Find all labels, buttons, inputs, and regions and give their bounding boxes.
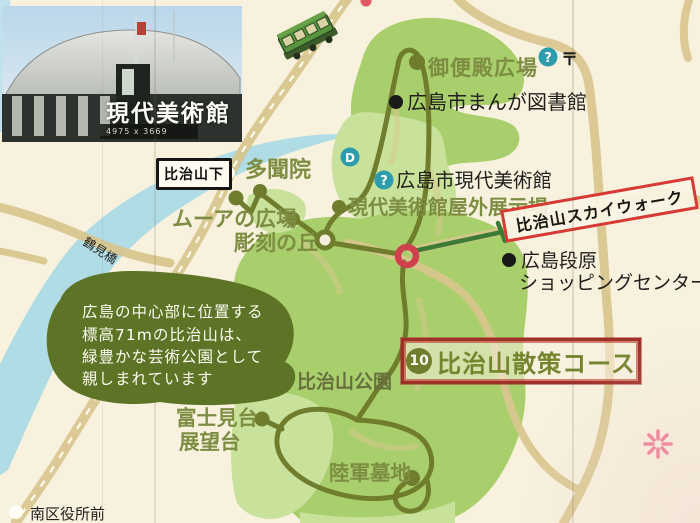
label-army-cemetery: 陸軍墓地 xyxy=(329,461,411,485)
info-blob-line1: 広島の中心部に位置する xyxy=(82,303,264,321)
question-icon-glyph: ? xyxy=(544,51,552,66)
info-blob-line2: 標高71mの比治山は、 xyxy=(82,326,252,344)
museum-photo: 現代美術館 4975 x 3669 xyxy=(2,6,242,142)
label-danbara-line1: 広島段原 xyxy=(521,250,597,272)
flower-mark xyxy=(645,431,671,457)
label-minamikuyakushomae: 南区役所前 xyxy=(30,505,105,523)
danbara-dot xyxy=(502,253,516,267)
course-number-badge: 10 xyxy=(406,348,432,374)
label-fujimidai-line2: 展望台 xyxy=(179,430,241,454)
outdoor-exhibition-dot xyxy=(332,200,346,214)
label-museum-contemporary: 広島市現代美術館 xyxy=(396,169,552,192)
info-blob-line4: 親しまれています xyxy=(82,370,214,388)
label-hijiyama-park: 比治山公園 xyxy=(297,370,392,393)
post-office-icon: 〒 xyxy=(561,50,578,70)
course-title-label: 比治山散策コース xyxy=(437,344,636,379)
spur-dot-b xyxy=(253,184,267,198)
info-icon-post: ? 〒 xyxy=(539,48,579,71)
label-moore-hiroba: ムーアの広場 xyxy=(172,207,297,231)
question-icon-glyph: ? xyxy=(380,174,388,189)
hijiyama-walking-map: 広島の中心部に位置する 標高71mの比治山は、 緑豊かな芸術公園として 親しまれ… xyxy=(0,0,700,523)
photo-caption: 4975 x 3669 xyxy=(100,124,198,139)
label-tamonin: 多聞院 xyxy=(245,157,311,183)
info-blob-line3: 緑豊かな芸術公園として xyxy=(82,348,263,366)
photo-flag xyxy=(137,22,146,35)
label-fujimidai-line1: 富士見台 xyxy=(176,406,258,430)
course-title-box: 10 比治山散策コース xyxy=(401,338,641,384)
label-danbara-line2: ショッピングセンター xyxy=(519,272,700,294)
junction-ring-marker xyxy=(317,232,333,248)
label-gobenden-hiroba: 御便殿広場 xyxy=(427,56,538,80)
label-manga-library: 広島市まんが図書館 xyxy=(407,90,587,114)
flower-mark-top-partial xyxy=(361,0,372,7)
photo-entrance-sign xyxy=(122,69,134,95)
tram-stop-minamiku-dot xyxy=(9,505,23,519)
manga-library-dot xyxy=(389,95,403,109)
stop-box-label: 比治山下 xyxy=(164,164,224,184)
d-mark-icon: D xyxy=(341,148,360,167)
question-icon-museum: ? xyxy=(375,171,394,190)
gobenden-dot xyxy=(409,54,425,70)
road-west-lower xyxy=(0,250,44,261)
stop-box-hijiyamashita: 比治山下 xyxy=(156,158,232,190)
road-top-right-corner xyxy=(684,0,692,58)
label-sculpture-hill: 彫刻の丘 xyxy=(233,231,318,255)
photo-title: 現代美術館 xyxy=(106,94,231,128)
spur-dot-a xyxy=(229,191,244,206)
d-mark-glyph: D xyxy=(345,151,355,165)
